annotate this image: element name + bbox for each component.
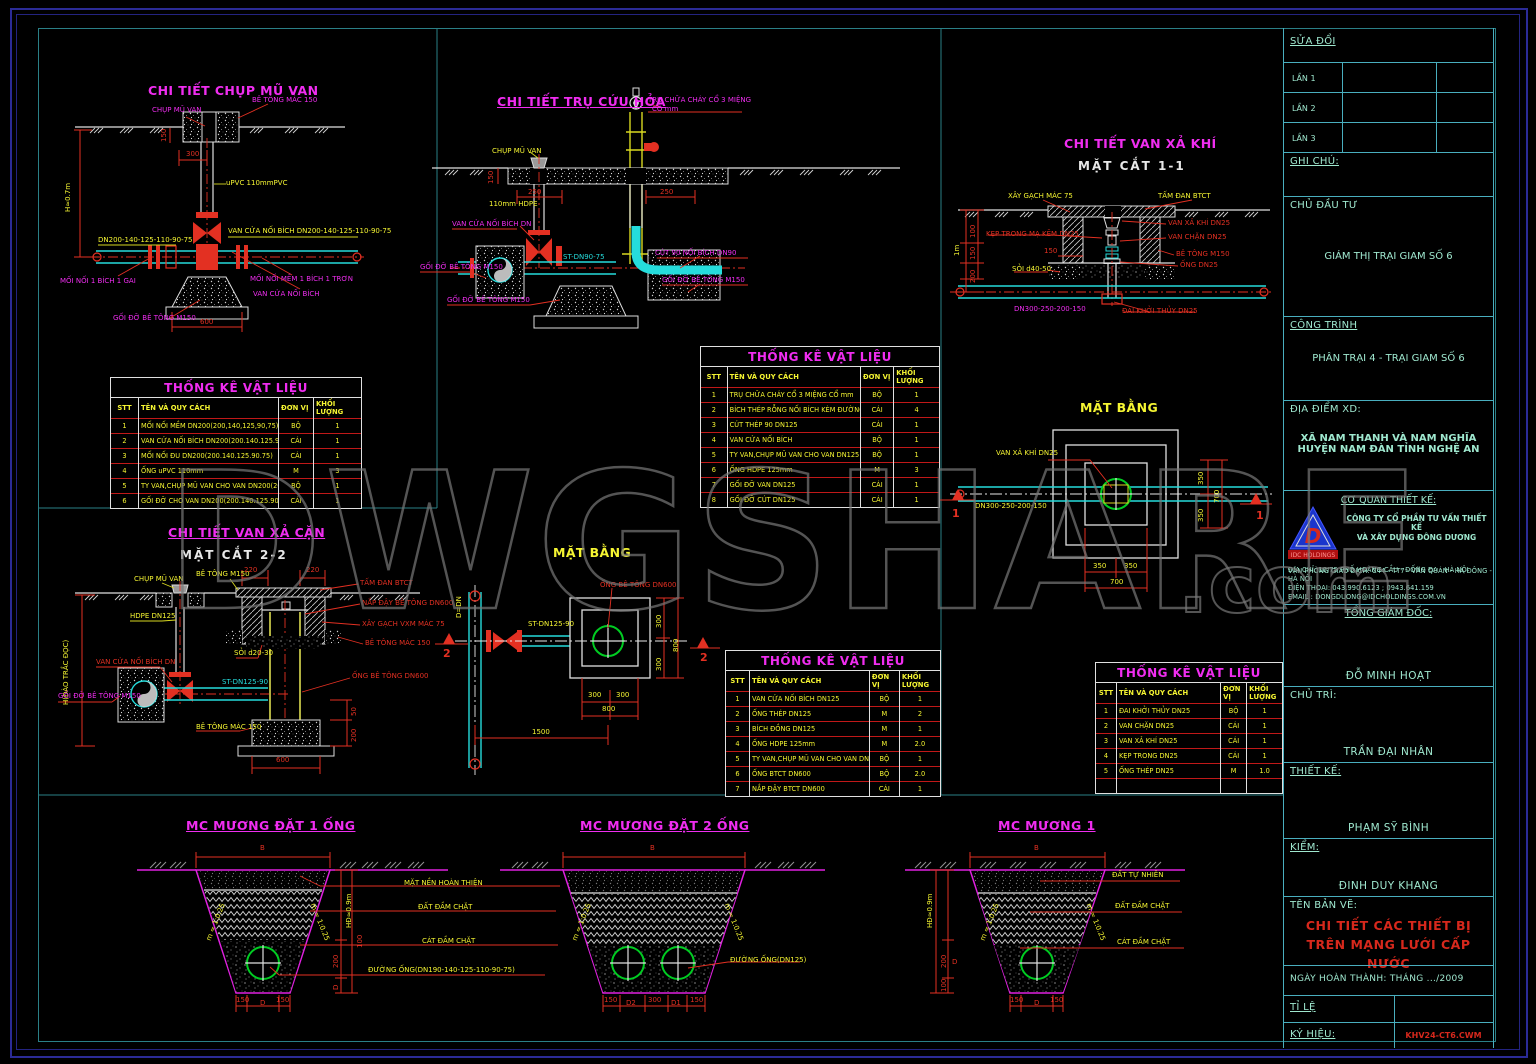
column-header: STT — [111, 398, 139, 419]
pipe-label: uPVC 110mmPVC — [226, 179, 287, 187]
plan-washout-title: MẶT BẰNG — [553, 546, 631, 560]
revision-header-section: SỬA ĐỔI — [1284, 28, 1493, 62]
location-line-1: XÃ NAM THANH VÀ NAM NGHĨA — [1284, 433, 1493, 444]
email-line: EMAIL : DONGDUONG@IDCHOLDINGS.COM.VN — [1284, 592, 1493, 601]
symbol-code: KHV24-CT6.CWM — [1396, 1031, 1491, 1040]
section-marker-2-right: 2 — [700, 652, 708, 665]
table-row — [1096, 779, 1282, 794]
dn-plan-label: DN300-250-200-150 — [975, 502, 1047, 510]
column-header: TÊN VÀ QUY CÁCH — [727, 367, 860, 388]
hydrant-title: CHI TIẾT TRỤ CỨU HỎA — [497, 95, 666, 109]
concrete-150-label: BÊ TÔNG MÁC 150 — [365, 639, 430, 647]
dim-350b: 350 — [1197, 509, 1205, 522]
revision-header: SỬA ĐỔI — [1284, 28, 1493, 47]
dim-350a: 350 — [1197, 472, 1205, 485]
table-row: 5ỐNG THÉP DN25M1.0 — [1096, 764, 1282, 779]
notes-label: GHI CHÚ: — [1284, 153, 1493, 167]
saddle-label: ĐAI KHỞI THỦY DN25 — [1122, 307, 1198, 315]
svg-text:D: D — [1305, 524, 1322, 548]
revision-1-label: LẦN 1 — [1284, 63, 1343, 93]
concrete-label: BÊ TÔNG M150 — [1176, 250, 1230, 258]
dim-150-left: 150 — [604, 996, 617, 1004]
dim-150-left: 150 — [236, 996, 249, 1004]
washout-title: CHI TIẾT VAN XẢ CẶN — [168, 526, 325, 540]
revision-row-1: LẦN 1 — [1284, 62, 1493, 93]
gravel-label: SỎI d20-30 — [234, 649, 273, 657]
column-header: ĐƠN VỊ — [860, 367, 893, 388]
dim-100: 100 — [356, 935, 364, 948]
table-row: 3VAN XẢ KHÍ DN25CÁI1 — [1096, 734, 1282, 749]
dim-700: 700 — [1213, 490, 1221, 503]
gate-valve-label: VAN CỬA NỐI BÍCH — [253, 290, 320, 298]
dim-100: 100 — [969, 225, 977, 238]
support-label: GỐI ĐỠ BÊ TÔNG M150 — [58, 692, 141, 700]
table-row: 6ỐNG BTCT DN600BỘ2.0 — [726, 767, 940, 782]
dim-300a: 300 — [655, 615, 663, 628]
elbow-label: CÚT 90 NỐI BÍCH DN90 — [655, 249, 736, 257]
project-value: PHÂN TRẠI 4 - TRẠI GIAM SỐ 6 — [1284, 353, 1493, 364]
compacted-soil-label: ĐẤT ĐẦM CHẶT — [1115, 902, 1169, 910]
dim-d2: D2 — [626, 999, 636, 1007]
table-row: 4VAN CỬA NỐI BÍCHBỘ1 — [701, 433, 939, 448]
dim-700b: 700 — [1110, 578, 1123, 586]
scale-label: TỈ LỆ — [1284, 996, 1493, 1013]
hdpe-label: 110mm HDPE — [489, 200, 538, 208]
dn-run-label: DN200-140-125-110-90-75 — [98, 236, 193, 244]
dim-b: B — [1034, 844, 1039, 852]
section-marker-2-left: 2 — [443, 648, 451, 661]
dim-250-right: 250 — [660, 188, 673, 196]
cap-label: CHỤP MŨ VAN — [134, 575, 183, 583]
table-row: 1VAN CỬA NỐI BÍCH DN125BỘ1 — [726, 692, 940, 707]
table-title: THỐNG KÊ VẬT LIỆU — [726, 651, 940, 671]
dim-100: 100 — [940, 979, 948, 992]
dim-150b: 150 — [969, 247, 977, 260]
dim-600: 600 — [200, 318, 213, 326]
designer-name: PHẠM SỸ BÌNH — [1284, 822, 1493, 834]
brick-label: XÂY GẠCH VXM MÁC 75 — [362, 620, 445, 628]
symbol-divider — [1394, 1023, 1395, 1048]
concrete-label: BÊ TÔNG M150 — [196, 570, 250, 578]
investor-label: CHỦ ĐẦU TƯ — [1284, 197, 1493, 211]
gate-valve-label: VAN CỬA NỐI BÍCH DN — [96, 658, 175, 666]
table-row: 1MỐI NỐI MỀM DN200(200,140,125,90,75)BỘ1 — [111, 419, 361, 434]
dim-800b: 800 — [602, 705, 615, 713]
table-row: 2BÍCH THÉP RỖNG NỐI BÍCH KÈM ĐƯỜNG ỐNGCÁ… — [701, 403, 939, 418]
cad-drawing-page: { "watermark": {"text": "DWGSHARE", "suf… — [0, 0, 1536, 1064]
joint2-label: MỐI NỐI MỀM 1 BÍCH 1 TRƠN — [250, 275, 353, 283]
table-row: 1TRỤ CHỮA CHÁY CỔ 3 MIỆNG CỔ mmBỘ1 — [701, 388, 939, 403]
dim-b: B — [260, 844, 265, 852]
dim-d-bottom: D — [260, 999, 265, 1007]
d-dn-label: D=DN — [455, 596, 463, 618]
drawing-name-label: TÊN BẢN VẼ: — [1284, 897, 1493, 911]
drawing-name-line-1: CHI TIẾT CÁC THIẾT BỊ — [1284, 917, 1493, 936]
table-row: 6GỐI ĐỠ CHO VAN DN200(200.140.125.90.75)… — [111, 494, 361, 509]
material-table-4: THỐNG KÊ VẬT LIỆU STTTÊN VÀ QUY CÁCHĐƠN … — [1095, 662, 1283, 794]
svg-text:IDC HOLDINGS: IDC HOLDINGS — [1291, 552, 1336, 559]
dim-350c: 350 — [1093, 562, 1106, 570]
support-bottom-label: GỐI ĐỠ BÊ TÔNG M150 — [447, 296, 530, 304]
material-table-3: THỐNG KÊ VẬT LIỆU STTTÊN VÀ QUY CÁCHĐƠN … — [725, 650, 941, 797]
air-valve-label: VAN XẢ KHÍ DN25 — [1168, 219, 1230, 227]
clamp-label: KẸP TRONG MẠ KẼM DN25 — [986, 230, 1079, 238]
dim-d: D — [332, 985, 340, 990]
table-row: 4KẸP TRONG DN25CÁI1 — [1096, 749, 1282, 764]
location-line-2: HUYỆN NAM ĐÀN TỈNH NGHỆ AN — [1284, 444, 1493, 455]
trench-1-title: MC MƯƠNG ĐẶT 1 ỐNG — [186, 819, 355, 833]
revision-3-label: LẦN 3 — [1284, 123, 1343, 153]
dim-b: B — [650, 844, 655, 852]
trench-2-title: MC MƯƠNG ĐẶT 2 ỐNG — [580, 819, 749, 833]
checker-section: KIỂM: ĐINH DUY KHANG — [1284, 838, 1493, 896]
support-left-label: GỐI ĐỠ BÊ TÔNG M150 — [420, 263, 503, 271]
column-header: KHỐI LƯỢNG — [899, 671, 940, 692]
trench-3-title: MC MƯƠNG 1 — [998, 819, 1096, 833]
trench-2-art — [500, 852, 825, 1012]
table-title: THỐNG KÊ VẬT LIỆU — [701, 347, 939, 367]
table-row: 8GỐI ĐỠ CÚT DN125CÁI1 — [701, 493, 939, 508]
checker-label: KIỂM: — [1284, 839, 1493, 853]
material-table-1: THỐNG KÊ VẬT LIỆU STTTÊN VÀ QUY CÁCHĐƠN … — [110, 377, 362, 509]
hdpe-label: HDPE DN125 — [130, 612, 176, 620]
section-marker-1-right: 1 — [1256, 510, 1264, 523]
table-row: 4ỐNG HDPE 125mmM2.0 — [726, 737, 940, 752]
column-header: TÊN VÀ QUY CÁCH — [1116, 683, 1220, 704]
compacted-sand-label: CÁT ĐẦM CHẶT — [422, 937, 475, 945]
table-row: 1ĐAI KHỞI THỦY DN25BỘ1 — [1096, 704, 1282, 719]
scale-section: TỈ LỆ — [1284, 995, 1493, 1022]
slab-label: TẤM ĐAN BTCT — [1158, 192, 1211, 200]
dim-350d: 350 — [1124, 562, 1137, 570]
dim-600: 600 — [276, 756, 289, 764]
material-table-2: THỐNG KÊ VẬT LIỆU STTTÊN VÀ QUY CÁCHĐƠN … — [700, 346, 940, 508]
stop-valve-label: VAN CHẶN DN25 — [1168, 233, 1227, 241]
dim-200: 200 — [969, 270, 977, 283]
surface-label: MẶT NỀN HOÀN THIỆN — [404, 879, 483, 887]
dim-220b: 220 — [306, 566, 319, 574]
notes-section: GHI CHÚ: — [1284, 152, 1493, 196]
column-header: KHỐI LƯỢNG — [894, 367, 939, 388]
plan-air-title: MẶT BẰNG — [1080, 401, 1158, 415]
general-director-section: TỔNG GIÁM ĐỐC: ĐỖ MINH HOẠT — [1284, 604, 1493, 686]
table-row: 4ỐNG uPVC 110mmM3 — [111, 464, 361, 479]
support-right-label: GỐI ĐỠ BÊ TÔNG M150 — [662, 276, 745, 284]
table-row: 3CÚT THÉP 90 DN125CÁI1 — [701, 418, 939, 433]
valve-cap-detail-art — [74, 104, 364, 332]
revision-2-label: LẦN 2 — [1284, 93, 1343, 123]
design-firm-name-2: VÀ XÂY DỰNG ĐÔNG DƯƠNG — [1342, 533, 1491, 542]
location-section: ĐỊA ĐIỂM XD: XÃ NAM THANH VÀ NAM NGHĨA H… — [1284, 400, 1493, 490]
lead-section: CHỦ TRÌ: TRẦN ĐẠI NHÂN — [1284, 686, 1493, 762]
dim-h: H≈0.7m — [64, 183, 72, 212]
general-director-label: TỔNG GIÁM ĐỐC: — [1284, 608, 1493, 619]
st-label: ST-DN90-75 — [563, 253, 605, 261]
lead-name: TRẦN ĐẠI NHÂN — [1284, 746, 1493, 758]
st-plan-label: ST-DN125-90 — [528, 620, 574, 628]
support-label: GỐI ĐỠ BÊ TÔNG M150 — [113, 314, 196, 322]
table-row: 7NẮP ĐẬY BTCT DN600CÁI1 — [726, 782, 940, 797]
dim-250-left: 250 — [528, 188, 541, 196]
table-row: 5TY VAN,CHỤP MŨ VAN CHO VAN DN125BỘ1 — [701, 448, 939, 463]
table-row: 2ỐNG THÉP DN125M2 — [726, 707, 940, 722]
table-row: 5TY VAN,CHỤP MŨ VAN CHO VAN DN125BỘ1 — [726, 752, 940, 767]
completion-date-section: NGÀY HOÀN THÀNH: THÁNG .../2009 — [1284, 965, 1493, 995]
dim-220a: 220 — [244, 566, 257, 574]
valve-cap-label: CHỤP MŨ VAN — [152, 106, 201, 114]
hydrant-label-2: CỔ mm — [652, 105, 678, 113]
checker-name: ĐINH DUY KHANG — [1284, 880, 1493, 892]
title-block: SỬA ĐỔI LẦN 1 LẦN 2 LẦN 3 GHI CHÚ: CHỦ Đ… — [1283, 28, 1494, 1048]
designer-label: THIẾT KẾ: — [1284, 763, 1493, 777]
table-title: THỐNG KÊ VẬT LIỆU — [1096, 663, 1282, 683]
dim-h: HĐ≈0.9m — [926, 893, 934, 928]
dim-300b: 300 — [655, 658, 663, 671]
revision-row-2: LẦN 2 — [1284, 92, 1493, 123]
column-header: ĐƠN VỊ — [869, 671, 899, 692]
location-label: ĐỊA ĐIỂM XD: — [1284, 401, 1493, 415]
concrete-bottom-label: BÊ TÔNG MÁC 150 — [196, 723, 261, 731]
table-row: 5TY VAN,CHỤP MŨ VAN CHO VAN DN200(200.14… — [111, 479, 361, 494]
compacted-sand-label: CÁT ĐẦM CHẶT — [1117, 938, 1170, 946]
dim-50: 50 — [350, 707, 358, 716]
table-header-row: STTTÊN VÀ QUY CÁCHĐƠN VỊKHỐI LƯỢNG — [111, 398, 361, 419]
dim-200: 200 — [350, 729, 358, 742]
column-header: KHỐI LƯỢNG — [314, 398, 362, 419]
compacted-soil-label: ĐẤT ĐẦM CHẶT — [418, 903, 472, 911]
lead-label: CHỦ TRÌ: — [1284, 687, 1493, 701]
dim-150-right: 150 — [1050, 996, 1063, 1004]
tube-plan-label: ỐNG BÊ TÔNG DN600 — [600, 581, 677, 589]
brick-label: XÂY GẠCH MÁC 75 — [1008, 192, 1073, 200]
gate-valve-label: VAN CỬA NỐI BÍCH DN — [452, 220, 531, 228]
dim-1m: 1m — [953, 245, 961, 256]
section-marker-1-left: 1 — [952, 508, 960, 521]
table-row: 6ỐNG HDPE 125mmM3 — [701, 463, 939, 478]
phone-line: ĐIỆN THOẠI: 043.990.6123 ; 0943.641.159 — [1284, 583, 1493, 592]
investor-section: CHỦ ĐẦU TƯ GIÁM THỊ TRẠI GIAM SỐ 6 — [1284, 196, 1493, 316]
slab-label: TẤM ĐAN BTCT — [360, 579, 413, 587]
dim-d-bottom: D — [1034, 999, 1039, 1007]
column-header: ĐƠN VỊ — [1221, 683, 1247, 704]
valve-flange-label: VAN CỬA NỐI BÍCH DN200-140-125-110-90-75 — [228, 227, 391, 235]
column-header: TÊN VÀ QUY CÁCH — [139, 398, 279, 419]
st-label: ST-DN125-90 — [222, 678, 268, 686]
table-row: 3BÍCH ĐỒNG DN125M1 — [726, 722, 940, 737]
design-firm-section: D IDC HOLDINGS CƠ QUAN THIẾT KẾ: CÔNG TY… — [1284, 490, 1493, 604]
table-title: THỐNG KÊ VẬT LIỆU — [111, 378, 361, 398]
pipe-dn25-label: ỐNG DN25 — [1180, 261, 1218, 269]
dn-main-label: DN300-250-200-150 — [1014, 305, 1086, 313]
column-header: ĐƠN VỊ — [279, 398, 314, 419]
table-row: 2VAN CỬA NỐI BÍCH DN200(200.140.125.90.7… — [111, 434, 361, 449]
dim-300c: 300 — [588, 691, 601, 699]
joint1-label: MỐI NỐI 1 BÍCH 1 GAI — [60, 277, 136, 285]
concrete-label: BÊ TÔNG MÁC 150 — [252, 96, 317, 104]
column-header: STT — [726, 671, 750, 692]
dim-150: 150 — [1044, 247, 1057, 255]
pipe-dn125-label: ĐƯỜNG ỐNG(DN125) — [730, 956, 806, 964]
general-director-name: ĐỖ MINH HOẠT — [1284, 670, 1493, 682]
project-label: CÔNG TRÌNH — [1284, 317, 1493, 331]
table-header-row: STTTÊN VÀ QUY CÁCHĐƠN VỊKHỐI LƯỢNG — [1096, 683, 1282, 704]
dim-800: 800 — [672, 639, 680, 652]
revision-row-3: LẦN 3 — [1284, 122, 1493, 153]
dim-150-left: 150 — [1010, 996, 1023, 1004]
hydrant-label-1: TRỤ CHỮA CHÁY CỔ 3 MIỆNG — [648, 96, 751, 104]
column-header: STT — [701, 367, 727, 388]
dim-h: HĐ≈0.9m — [345, 893, 353, 928]
section-1-1-label: MẶT CẮT 1-1 — [1078, 160, 1186, 174]
scale-divider — [1394, 996, 1395, 1022]
air-valve-plan-label: VAN XẢ KHÍ DN25 — [996, 449, 1058, 457]
section-2-2-label: MẶT CẮT 2-2 — [180, 549, 288, 563]
dim-d: D — [952, 958, 957, 966]
column-header: STT — [1096, 683, 1116, 704]
cap-label: CHỤP MŨ VAN — [492, 147, 541, 155]
project-section: CÔNG TRÌNH PHÂN TRẠI 4 - TRẠI GIAM SỐ 6 — [1284, 316, 1493, 400]
dim-300d: 300 — [616, 691, 629, 699]
pipe-run-label: ĐƯỜNG ỐNG(DN190-140-125-110-90-75) — [368, 966, 515, 974]
gravel-label: SỎI d40-50 — [1012, 265, 1051, 273]
table-row: 3MỐI NỐI ĐU DN200(200.140.125.90.75)CÁI1 — [111, 449, 361, 464]
dim-150-right: 150 — [690, 996, 703, 1004]
investor-value: GIÁM THỊ TRẠI GIAM SỐ 6 — [1284, 251, 1493, 262]
table-header-row: STTTÊN VÀ QUY CÁCHĐƠN VỊKHỐI LƯỢNG — [701, 367, 939, 388]
table-row: 7GỐI ĐỠ VAN DN125CÁI1 — [701, 478, 939, 493]
design-firm-logo: D IDC HOLDINGS — [1288, 505, 1338, 561]
design-firm-name-1: CÔNG TY CỔ PHẦN TƯ VẤN THIẾT KẾ — [1342, 514, 1491, 532]
dim-150: 150 — [160, 129, 168, 142]
dim-d1: D1 — [671, 999, 681, 1007]
dim-1500: 1500 — [532, 728, 550, 736]
dim-300: 300 — [186, 150, 199, 158]
dim-300: 300 — [648, 996, 661, 1004]
symbol-section: KÝ HIỆU: KHV24-CT6.CWM — [1284, 1022, 1493, 1048]
trench-1-art — [137, 852, 560, 1012]
designer-section: THIẾT KẾ: PHẠM SỸ BÌNH — [1284, 762, 1493, 838]
completion-date: NGÀY HOÀN THÀNH: THÁNG .../2009 — [1284, 966, 1493, 984]
air-valve-title: CHI TIẾT VAN XẢ KHÍ — [1064, 137, 1217, 151]
dim-150: 150 — [487, 171, 495, 184]
column-header: TÊN VÀ QUY CÁCH — [750, 671, 870, 692]
washout-plan-art — [435, 585, 720, 775]
table-header-row: STTTÊN VÀ QUY CÁCHĐƠN VỊKHỐI LƯỢNG — [726, 671, 940, 692]
natural-soil-label: ĐẤT TỰ NHIÊN — [1112, 871, 1163, 879]
lid-label: NẮP ĐẬY BÊ TÔNG DN600 — [362, 599, 453, 607]
dim-150-right: 150 — [276, 996, 289, 1004]
tube-label: ỐNG BÊ TÔNG DN600 — [352, 672, 429, 680]
drawing-name-section: TÊN BẢN VẼ: CHI TIẾT CÁC THIẾT BỊ TRÊN M… — [1284, 896, 1493, 965]
column-header: KHỐI LƯỢNG — [1247, 683, 1282, 704]
dim-200: 200 — [332, 955, 340, 968]
table-row: 2VAN CHẶN DN25CÁI1 — [1096, 719, 1282, 734]
office-line: VĂN PHÒNG GIAO DỊCH: C44 - TT7 - VĂN QUÁ… — [1284, 566, 1493, 583]
dim-200: 200 — [940, 955, 948, 968]
